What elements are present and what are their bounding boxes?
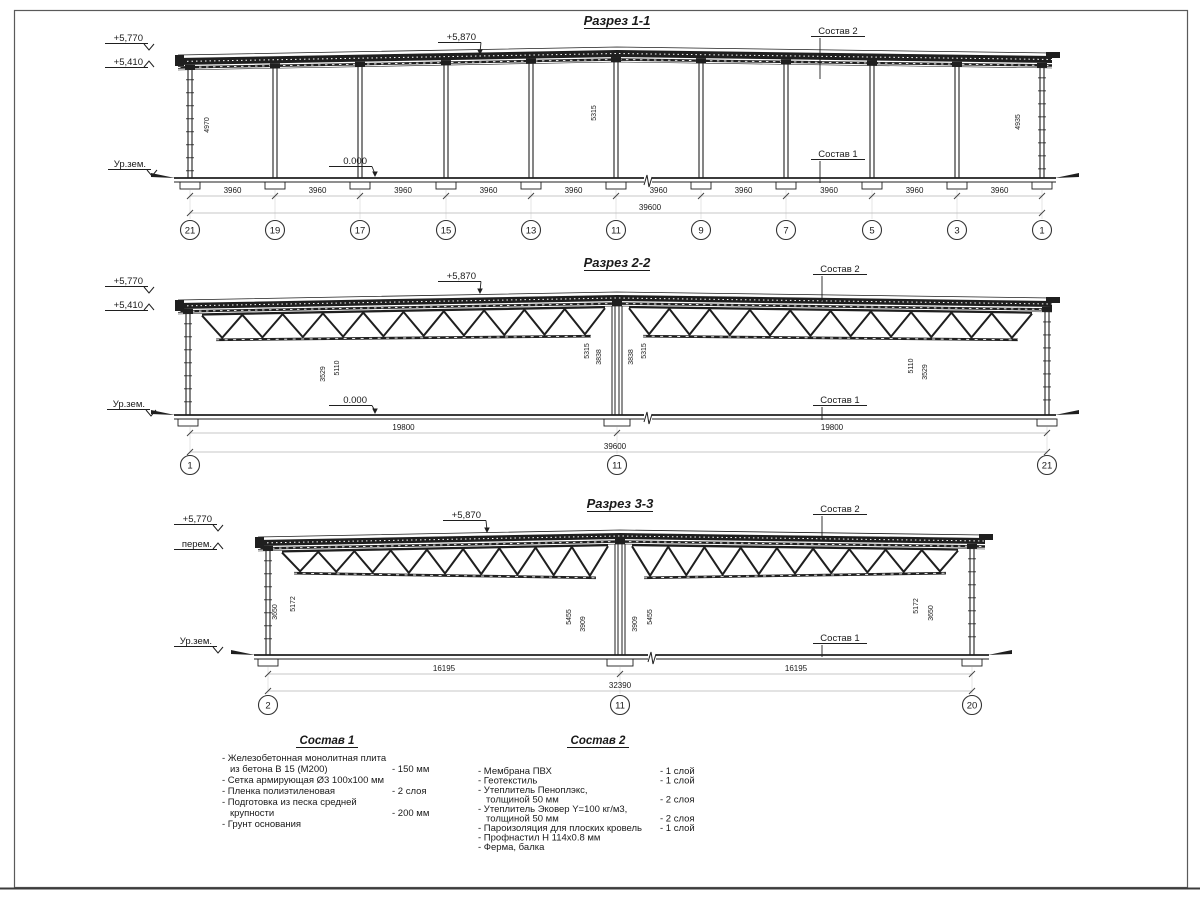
vertical-dim-label: 3529 — [922, 364, 929, 380]
grid-bubble-label: 5 — [869, 225, 874, 236]
level-mark: Ур.зем. — [107, 399, 156, 416]
vertical-dim-label: 4935 — [1015, 114, 1022, 130]
section-3-3-title: Разрез 3-3 — [587, 496, 655, 511]
callout-comp2: Состав 2 — [811, 26, 865, 79]
column — [867, 61, 877, 178]
column-cap — [270, 63, 280, 68]
column-cap — [967, 544, 977, 549]
bay-dim-label: 3960 — [394, 186, 412, 195]
drawing-canvas: Разрез 1-1 Разрез 2-2 Разрез 3-3 3960396… — [0, 0, 1200, 900]
grid-bubble-label: 1 — [1039, 225, 1044, 236]
drawing-sheet: Разрез 1-1 Разрез 2-2 Разрез 3-3 3960396… — [0, 0, 1200, 900]
section-1-1: 3960396039603960396039603960396039603960… — [105, 26, 1079, 240]
column-cap — [615, 539, 625, 544]
column — [1037, 63, 1047, 178]
level-mark: +5,770 — [105, 33, 154, 50]
svg-text:+5,870: +5,870 — [447, 32, 476, 43]
svg-text:+5,870: +5,870 — [452, 510, 481, 521]
overall-dim-label: 39600 — [639, 203, 662, 212]
level-mark: +5,410 — [105, 300, 154, 311]
vertical-dim-label: 5172 — [290, 596, 297, 612]
vertical-dim-label: 4970 — [204, 117, 211, 133]
svg-text:+5,410: +5,410 — [114, 300, 143, 311]
column-cap — [355, 62, 365, 67]
legend-item-value: - 150 мм — [392, 764, 429, 775]
column — [696, 58, 706, 178]
bay-dim-label: 19800 — [821, 423, 844, 432]
svg-text:Состав 1: Состав 1 — [818, 149, 857, 160]
svg-text:Состав 2: Состав 2 — [820, 504, 859, 515]
callout-comp1: Состав 1 — [813, 633, 867, 657]
grid-bubble-label: 15 — [441, 225, 452, 236]
column — [441, 60, 451, 178]
legend-item-text: - Подготовка из песка средней — [222, 797, 357, 808]
vertical-dim-label: 5315 — [591, 105, 598, 121]
column-cap — [781, 59, 791, 64]
legend-comp1-title: Состав 1 — [300, 735, 355, 747]
grid-bubble-label: 9 — [698, 225, 703, 236]
column-cap — [867, 61, 877, 66]
legend-item-value: - 2 слоя — [660, 795, 695, 806]
footing — [604, 419, 630, 426]
grid-bubble-label: 21 — [1042, 460, 1053, 471]
svg-text:Ур.зем.: Ур.зем. — [114, 159, 146, 170]
column-cap — [696, 58, 706, 63]
grid-bubble-label: 19 — [270, 225, 281, 236]
column — [612, 301, 622, 415]
roof-right-cap — [1046, 297, 1060, 303]
column-cap — [185, 65, 195, 70]
svg-text:+5,770: +5,770 — [183, 514, 212, 525]
column-cap — [611, 57, 621, 62]
svg-text:+5,410: +5,410 — [114, 57, 143, 68]
bay-dim-label: 3960 — [735, 186, 753, 195]
grid-bubble-label: 20 — [967, 700, 978, 711]
ground-wedge-right — [1055, 410, 1079, 415]
truss — [632, 545, 958, 578]
roof-left-cap — [175, 55, 184, 66]
legend-item-text: - Ферма, балка — [478, 842, 545, 853]
footing — [1037, 419, 1057, 426]
footing — [350, 182, 370, 189]
bay-dim-label: 3960 — [991, 186, 1009, 195]
level-mark: +5,770 — [174, 514, 223, 531]
grid-bubble-label: 13 — [526, 225, 537, 236]
grid-bubble-label: 1 — [187, 460, 192, 471]
bay-dim-label: 16195 — [785, 664, 808, 673]
footing — [862, 182, 882, 189]
ground-wedge-left — [151, 173, 175, 178]
svg-text:Состав 2: Состав 2 — [820, 264, 859, 275]
vertical-dim-label: 3650 — [272, 604, 279, 620]
footing — [521, 182, 541, 189]
footing — [1032, 182, 1052, 189]
svg-text:Состав 1: Состав 1 — [820, 633, 859, 644]
vertical-dim-label: 5315 — [641, 343, 648, 359]
roof-left-cap — [255, 537, 264, 548]
grid-bubble-label: 7 — [783, 225, 788, 236]
legend-item-value: - 1 слой — [660, 776, 695, 787]
truss — [202, 307, 605, 340]
level-mark: 0.000 — [329, 156, 378, 177]
grid-bubble-label: 21 — [185, 225, 196, 236]
overall-dim-label: 32390 — [609, 681, 632, 690]
vertical-dim-label: 3838 — [596, 349, 603, 365]
vertical-dim-label: 3909 — [580, 616, 587, 632]
vertical-dim-label: 3838 — [628, 349, 635, 365]
vertical-dim-label: 3650 — [928, 605, 935, 621]
bay-dim-label: 16195 — [433, 664, 456, 673]
column-cap — [263, 546, 273, 551]
vertical-dim-label: 3909 — [632, 616, 639, 632]
svg-text:Состав 2: Состав 2 — [818, 26, 857, 37]
roof-right-cap — [979, 534, 993, 540]
grid-bubble-label: 3 — [954, 225, 959, 236]
level-mark: перем. — [174, 539, 223, 550]
column-cap — [1037, 63, 1047, 68]
grid-bubble-label: 2 — [265, 700, 270, 711]
level-mark: +5,870 — [443, 510, 490, 533]
column — [183, 309, 193, 415]
legend-item-value: - 1 слой — [660, 823, 695, 834]
svg-text:Ур.зем.: Ур.зем. — [113, 399, 145, 410]
footing — [436, 182, 456, 189]
svg-text:Ур.зем.: Ур.зем. — [180, 636, 212, 647]
vertical-dim-label: 5315 — [584, 343, 591, 359]
sheet-border — [15, 11, 1188, 888]
level-mark: +5,870 — [438, 32, 483, 55]
bay-dim-label: 3960 — [650, 186, 668, 195]
legend-item-text: - Железобетонная монолитная плита — [222, 753, 387, 764]
ground-wedge-right — [988, 650, 1012, 655]
bay-dim-label: 3960 — [480, 186, 498, 195]
svg-text:+5,770: +5,770 — [114, 33, 143, 44]
footing — [947, 182, 967, 189]
bay-dim-label: 19800 — [392, 423, 415, 432]
column-cap — [1042, 307, 1052, 312]
grid-bubble-label: 17 — [355, 225, 366, 236]
column-cap — [952, 62, 962, 67]
svg-text:+5,770: +5,770 — [114, 276, 143, 287]
bay-dim-label: 3960 — [906, 186, 924, 195]
ground-wedge-left — [231, 650, 255, 655]
grid-bubble-label: 11 — [615, 700, 625, 711]
vertical-dim-label: 3529 — [320, 366, 327, 382]
ground-wedge-right — [1055, 173, 1079, 178]
footing — [607, 659, 633, 666]
overall-dim-label: 39600 — [604, 442, 627, 451]
legend-item-value: - 2 слоя — [392, 786, 427, 797]
section-1-1-title: Разрез 1-1 — [584, 13, 651, 28]
truss — [282, 545, 608, 578]
svg-text:+5,870: +5,870 — [447, 271, 476, 282]
footing — [265, 182, 285, 189]
roof-left-cap — [175, 300, 184, 311]
bay-dim-label: 3960 — [224, 186, 242, 195]
legend-rows: - Железобетонная монолитная плитаиз бето… — [222, 753, 695, 853]
svg-text:Состав 1: Состав 1 — [820, 395, 859, 406]
column — [1042, 307, 1052, 415]
footing — [606, 182, 626, 189]
column — [615, 539, 625, 655]
vertical-dim-label: 5455 — [647, 609, 654, 625]
callout-comp1: Состав 1 — [813, 395, 867, 420]
legend-item-text: - Пленка полиэтиленовая — [222, 786, 335, 797]
svg-text:0.000: 0.000 — [343, 156, 367, 167]
footing — [691, 182, 711, 189]
footing — [776, 182, 796, 189]
level-mark: Ур.зем. — [108, 159, 157, 176]
legend-item-text: - Сетка армирующая Ø3 100х100 мм — [222, 775, 384, 786]
column — [781, 59, 791, 178]
column — [526, 59, 536, 178]
bay-dim-label: 3960 — [820, 186, 838, 195]
level-mark: Ур.зем. — [174, 636, 223, 653]
level-mark: 0.000 — [329, 395, 378, 414]
sections-drawing: 3960396039603960396039603960396039603960… — [105, 26, 1079, 715]
column-cap — [441, 60, 451, 65]
legend: Состав 1 Состав 2 - Железобетонная монол… — [222, 735, 695, 853]
section-3-3: 16195161953239021120+5,770перем.Ур.зем.+… — [174, 504, 1012, 715]
column — [263, 546, 273, 655]
section-2-2: 19800198003960011121+5,770+5,410Ур.зем.0… — [105, 264, 1079, 475]
vertical-dim-label: 5455 — [566, 609, 573, 625]
column — [952, 62, 962, 178]
footing — [258, 659, 278, 666]
ground-wedge-left — [151, 410, 175, 415]
section-2-2-title: Разрез 2-2 — [584, 255, 652, 270]
callout-comp2: Состав 2 — [813, 504, 867, 539]
vertical-dim-label: 5110 — [908, 358, 915, 373]
column-cap — [612, 301, 622, 306]
roof-right-cap — [1046, 52, 1060, 58]
vertical-dim-label: 5110 — [334, 360, 341, 375]
truss — [629, 307, 1032, 340]
svg-text:перем.: перем. — [182, 539, 212, 550]
footing — [178, 419, 198, 426]
level-mark: +5,870 — [438, 271, 483, 294]
bay-dim-label: 3960 — [565, 186, 583, 195]
column — [270, 63, 280, 178]
legend-item-text: из бетона В 15 (М200) — [230, 764, 328, 775]
footing — [962, 659, 982, 666]
legend-item-text: - Грунт основания — [222, 819, 301, 830]
column-cap — [183, 309, 193, 314]
truss-web — [632, 546, 958, 576]
grid-bubble-label: 11 — [612, 460, 622, 471]
footing — [180, 182, 200, 189]
level-mark: +5,770 — [105, 276, 154, 293]
column-cap — [526, 59, 536, 64]
column — [185, 65, 195, 178]
legend-item-value: - 200 мм — [392, 808, 429, 819]
svg-text:0.000: 0.000 — [343, 395, 367, 406]
legend-item-text: крупности — [230, 808, 274, 819]
column — [611, 57, 621, 178]
column — [967, 544, 977, 655]
grid-bubble-label: 11 — [611, 225, 621, 236]
vertical-dim-label: 5172 — [913, 598, 920, 614]
bay-dim-label: 3960 — [309, 186, 327, 195]
level-mark: +5,410 — [105, 57, 154, 68]
legend-comp2-title: Состав 2 — [571, 735, 626, 747]
